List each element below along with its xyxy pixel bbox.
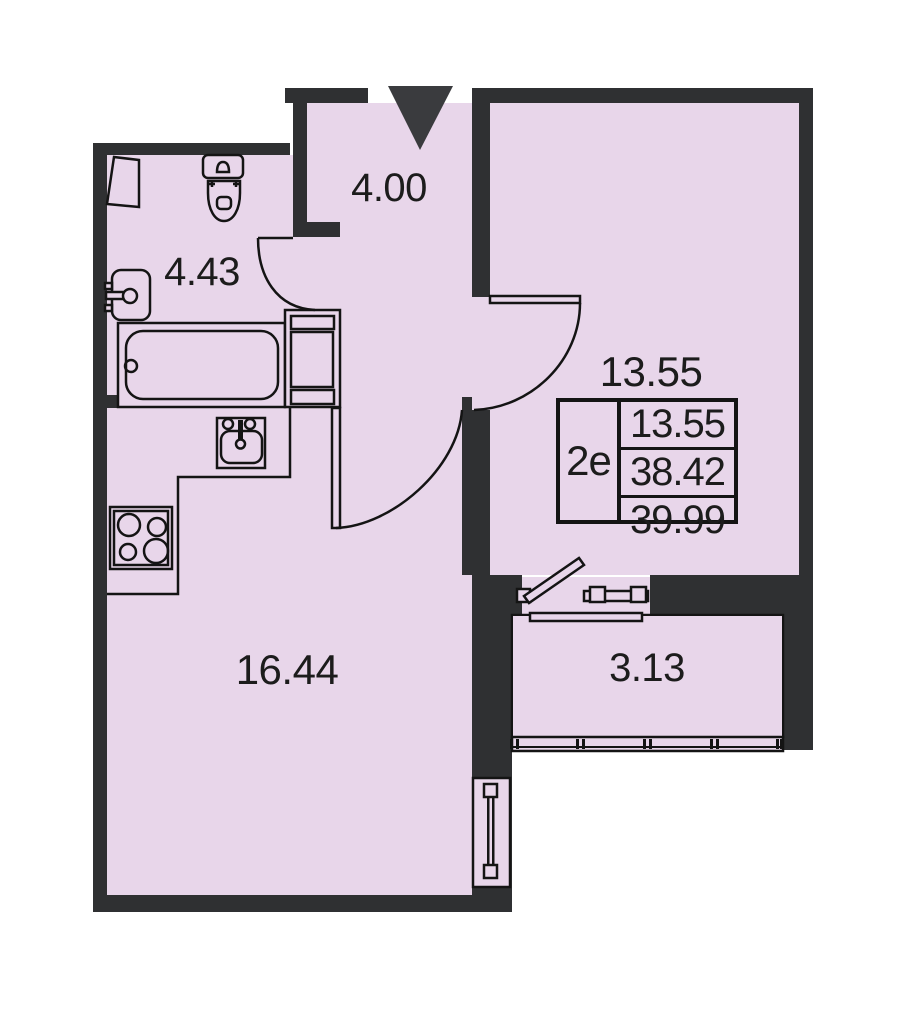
wall-balcony-outer: [783, 613, 813, 750]
living-area-label: 13.55: [600, 351, 703, 393]
stove-icon: [110, 507, 172, 569]
wall-bottom: [93, 895, 512, 912]
bathtub-icon: [118, 323, 285, 407]
unit-type-cell: 2е: [560, 402, 621, 520]
wall-bathroom-top: [93, 143, 290, 155]
living-door-leaf: [490, 296, 580, 303]
window-stop-bottom: [484, 865, 497, 878]
balcony-area-label: 3.13: [609, 648, 685, 688]
corner-shelf-icon: [107, 157, 139, 207]
wall-balcony-left: [472, 575, 522, 615]
balcony-window-stop-right: [631, 587, 646, 602]
floor-plan-drawing: [0, 0, 900, 1012]
kitchen-doorway: [340, 395, 462, 408]
balcony-threshold: [530, 613, 642, 621]
kitchen-sink-icon: [217, 418, 265, 468]
wall-left: [93, 143, 107, 912]
wardrobe-icon: [285, 310, 340, 407]
usable-area-value: 38.42: [621, 450, 734, 498]
balcony-window-stop-left: [590, 587, 605, 602]
unit-info-table: 2е 13.55 38.42 39.99: [556, 398, 738, 524]
window-stop-top: [484, 784, 497, 797]
kitchen-door-leaf: [332, 408, 340, 528]
living-doorway: [472, 297, 490, 410]
total-area-value: 39.99: [621, 498, 734, 543]
window: [473, 778, 510, 887]
floor-plan-canvas: 4.00 4.43 13.55 16.44 3.13 2е 13.55 38.4…: [0, 0, 900, 1012]
wall-bath-door-jamb: [293, 222, 340, 237]
wall-top-right: [472, 88, 813, 103]
window-pane-line: [487, 788, 490, 876]
wall-balcony-right: [650, 575, 813, 615]
wall-bath-hall-divider: [293, 100, 307, 222]
wall-hall-living-lower: [462, 397, 490, 575]
hallway-area-label: 4.00: [351, 168, 427, 208]
wall-sink-icon: [105, 270, 150, 320]
wall-hall-living-upper: [472, 103, 490, 297]
kitchen-area-label: 16.44: [236, 649, 339, 691]
bathroom-area-label: 4.43: [164, 252, 240, 292]
bathroom-doorway: [293, 237, 307, 310]
unit-values-column: 13.55 38.42 39.99: [621, 402, 734, 520]
balcony-glazing-band: [512, 737, 783, 751]
living-area-value: 13.55: [621, 402, 734, 450]
window-pane-line: [492, 788, 495, 876]
